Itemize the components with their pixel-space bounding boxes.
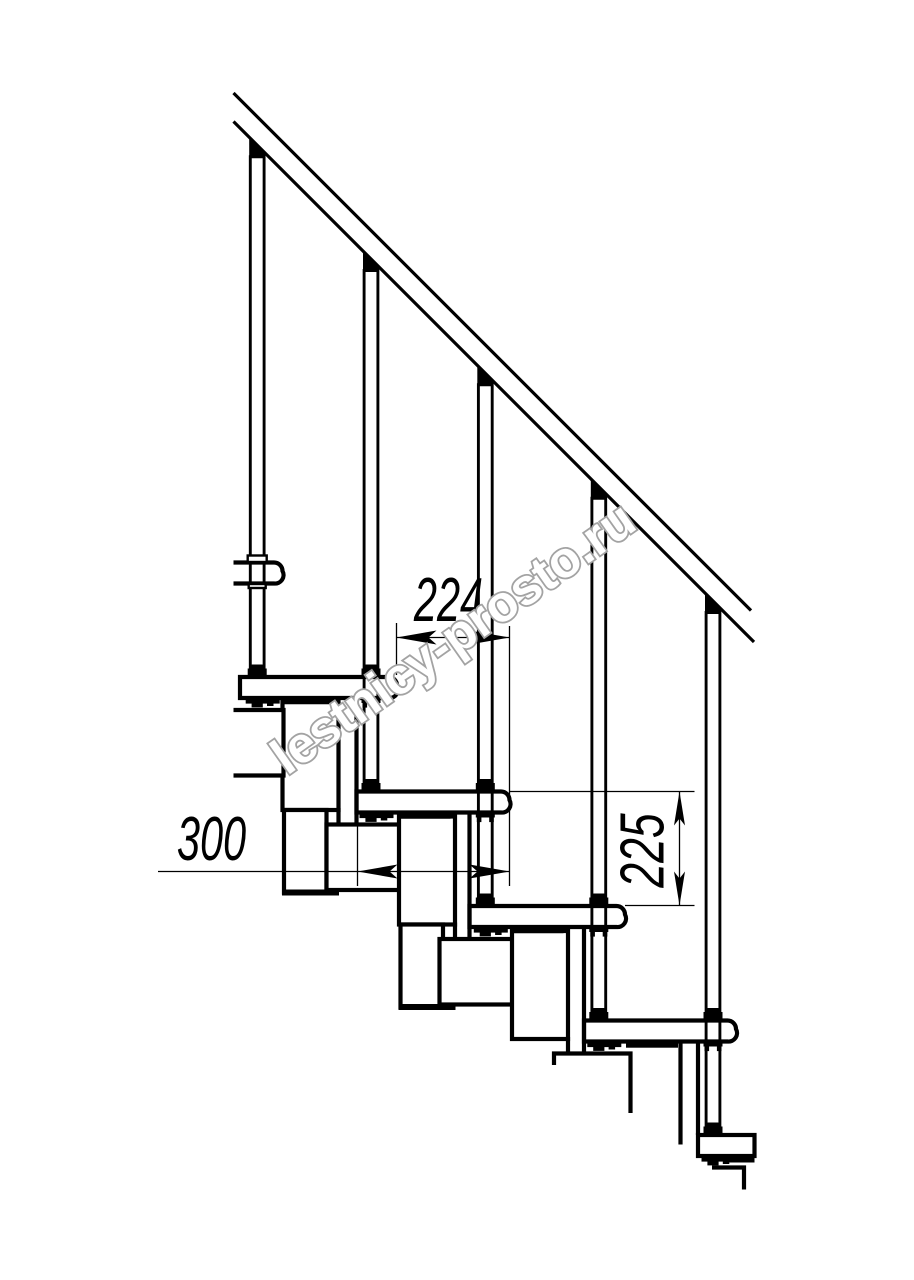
svg-text:300: 300 bbox=[177, 805, 246, 874]
svg-text:225: 225 bbox=[608, 812, 677, 888]
